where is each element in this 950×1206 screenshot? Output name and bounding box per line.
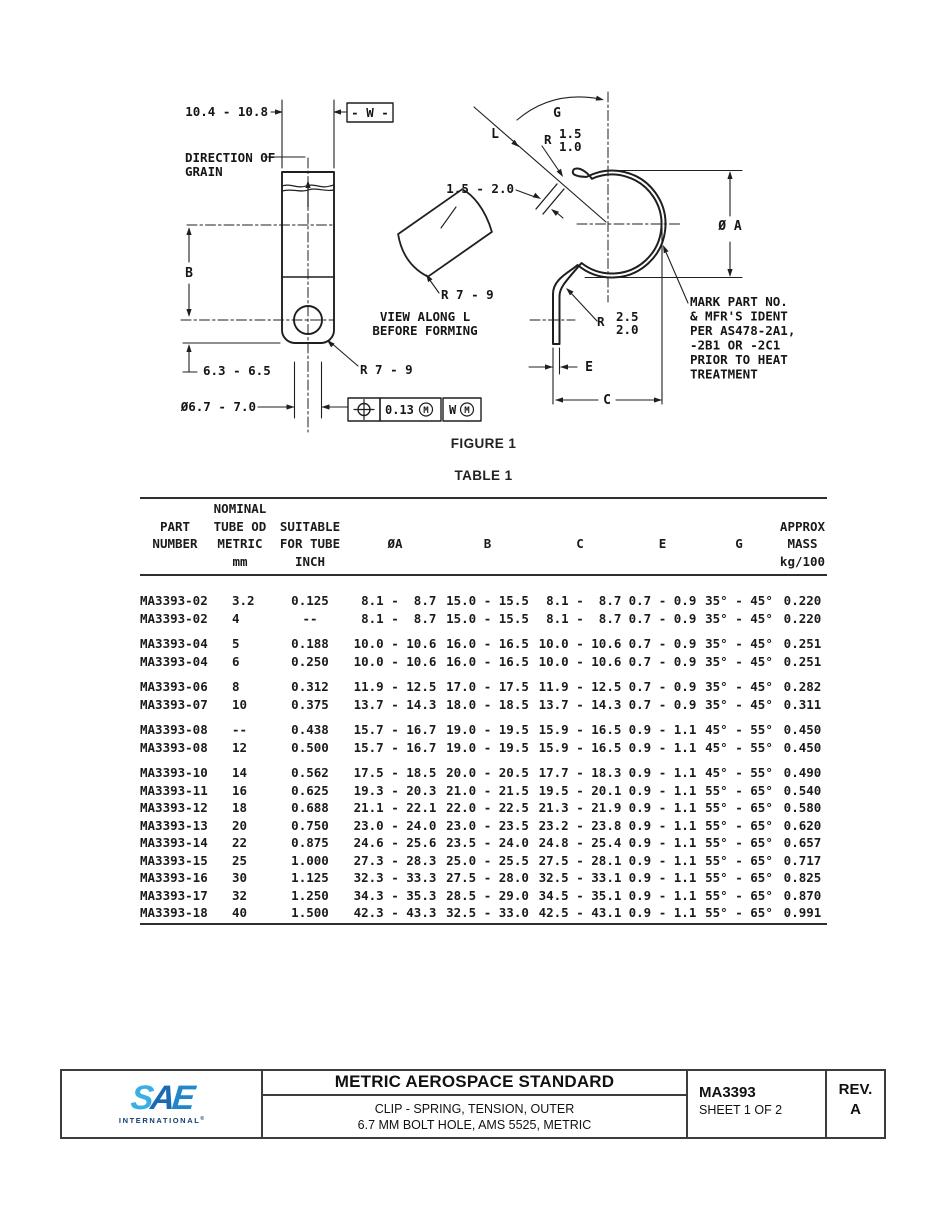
table-cell: MA3393-17: [140, 887, 210, 905]
table-cell: 10.0 - 10.6: [535, 635, 625, 653]
table-cell: 0.251: [778, 635, 827, 653]
table-header-line: [700, 519, 778, 537]
table-header-line: [350, 554, 440, 572]
table-cell: 55° - 65°: [700, 852, 778, 870]
table-cell: 35° - 45°: [700, 653, 778, 671]
table-cell: 23.0 - 23.5: [440, 817, 535, 835]
table-cell: 32.5 - 33.1: [535, 869, 625, 887]
table-header-line: [350, 519, 440, 537]
table-cell: 55° - 65°: [700, 834, 778, 852]
table-cell: 0.657: [778, 834, 827, 852]
table-cell: 6: [210, 653, 270, 671]
fcf-datum-modifier: M: [464, 406, 470, 416]
table-cell: 20: [210, 817, 270, 835]
table-header-line: mm: [210, 554, 270, 572]
table-cell: 0.9 - 1.1: [625, 721, 700, 739]
table-header-cell-tube-od-metric: NOMINALTUBE ODMETRICmm: [210, 501, 270, 571]
table-header-line: [778, 501, 827, 519]
table-row: MA3393-15251.00027.3 - 28.325.0 - 25.527…: [140, 852, 827, 870]
table-cell: 4: [210, 610, 270, 628]
table-cell: MA3393-08: [140, 721, 210, 739]
table-header-line: kg/100: [778, 554, 827, 572]
table-cell: 13.7 - 14.3: [535, 696, 625, 714]
dia-a-label: Ø A: [717, 219, 742, 234]
table-header-line: PART: [140, 519, 210, 537]
table-header-cell-part-number: PARTNUMBER: [140, 501, 210, 571]
table-cell: MA3393-10: [140, 764, 210, 782]
table-row: MA3393-18401.50042.3 - 43.332.5 - 33.042…: [140, 904, 827, 922]
table-cell: 0.7 - 0.9: [625, 592, 700, 610]
table-cell: 0.311: [778, 696, 827, 714]
table-row: MA3393-023.20.125 8.1 - 8.715.0 - 15.5 8…: [140, 592, 827, 610]
table-cell: 11.9 - 12.5: [350, 678, 440, 696]
mark-note-line: PER AS478-2A1,: [690, 323, 795, 338]
table-cell: MA3393-15: [140, 852, 210, 870]
table-header-line: NUMBER: [140, 536, 210, 554]
table-cell: MA3393-04: [140, 653, 210, 671]
table-cell: 15.0 - 15.5: [440, 610, 535, 628]
table-header-line: [270, 501, 350, 519]
datum-w-label: - W -: [351, 105, 389, 120]
table-header-line: B: [440, 536, 535, 554]
table-cell: 15.7 - 16.7: [350, 721, 440, 739]
title-block: SAE INTERNATIONAL® METRIC AEROSPACE STAN…: [60, 1069, 886, 1139]
sae-logo: SAE INTERNATIONAL®: [62, 1071, 261, 1137]
table-cell: 55° - 65°: [700, 904, 778, 922]
table-cell: 45° - 55°: [700, 764, 778, 782]
table-cell: 8.1 - 8.7: [350, 610, 440, 628]
table-cell: 0.717: [778, 852, 827, 870]
table-cell: 0.625: [270, 782, 350, 800]
fcf-tolerance: 0.13: [385, 403, 414, 417]
fcf-modifier: M: [423, 406, 429, 416]
table-row: MA3393-10140.56217.5 - 18.520.0 - 20.517…: [140, 764, 827, 782]
table-cell: 0.9 - 1.1: [625, 739, 700, 757]
table-cell: 0.620: [778, 817, 827, 835]
table-cell: 1.000: [270, 852, 350, 870]
table-cell: 32: [210, 887, 270, 905]
table-cell: 8: [210, 678, 270, 696]
table-cell: 0.250: [270, 653, 350, 671]
table-header-row: PARTNUMBERNOMINALTUBE ODMETRICmmSUITABLE…: [140, 501, 827, 571]
e-dim-label: E: [585, 360, 593, 375]
table-cell: 30: [210, 869, 270, 887]
corner-radius-label: R 7 - 9: [360, 362, 413, 377]
table-header-line: SUITABLE: [270, 519, 350, 537]
table-cell: 35° - 45°: [700, 635, 778, 653]
table-header-line: [440, 519, 535, 537]
table-row: MA3393-0460.25010.0 - 10.616.0 - 16.510.…: [140, 653, 827, 671]
table-cell: 20.0 - 20.5: [440, 764, 535, 782]
table-cell: 8.1 - 8.7: [535, 610, 625, 628]
table-cell: 0.490: [778, 764, 827, 782]
table-cell: 0.562: [270, 764, 350, 782]
document-number-cell: MA3393 SHEET 1 OF 2: [688, 1071, 827, 1137]
table-cell: 19.0 - 19.5: [440, 721, 535, 739]
table-header-line: E: [625, 536, 700, 554]
table-cell: 34.5 - 35.1: [535, 887, 625, 905]
table-header-cell-b: B: [440, 501, 535, 571]
table-header-line: INCH: [270, 554, 350, 572]
clip-outline: [553, 169, 666, 344]
table-cell: 0.312: [270, 678, 350, 696]
g-angle-label: G: [553, 106, 561, 121]
mark-note-line: MARK PART NO.: [690, 294, 788, 309]
table-cell: 17.5 - 18.5: [350, 764, 440, 782]
mark-note-line: -2B1 OR -2C1: [690, 338, 780, 353]
table-header-line: [700, 501, 778, 519]
b-dim-label: B: [185, 266, 193, 281]
table-cell: 15.7 - 16.7: [350, 739, 440, 757]
table-cell: 0.9 - 1.1: [625, 764, 700, 782]
tube-outline: [398, 189, 492, 276]
table-header-line: [625, 501, 700, 519]
table-cell: 19.5 - 20.1: [535, 782, 625, 800]
sae-logo-subtext: INTERNATIONAL®: [119, 1116, 204, 1125]
table-cell: 0.9 - 1.1: [625, 852, 700, 870]
table-cell: 17.7 - 18.3: [535, 764, 625, 782]
figure-caption: FIGURE 1: [140, 436, 827, 451]
table-cell: 0.9 - 1.1: [625, 869, 700, 887]
table-cell: 5: [210, 635, 270, 653]
table-cell: 0.282: [778, 678, 827, 696]
table-row: MA3393-11160.62519.3 - 20.321.0 - 21.519…: [140, 782, 827, 800]
table-cell: 0.688: [270, 799, 350, 817]
table-cell: 0.500: [270, 739, 350, 757]
table-cell: 0.750: [270, 817, 350, 835]
table-cell: 18.0 - 18.5: [440, 696, 535, 714]
table-row: MA3393-16301.12532.3 - 33.327.5 - 28.032…: [140, 869, 827, 887]
table-row: MA3393-07100.37513.7 - 14.318.0 - 18.513…: [140, 696, 827, 714]
mark-note-line: TREATMENT: [690, 367, 758, 382]
table-cell: 15.9 - 16.5: [535, 721, 625, 739]
table-header-line: [535, 554, 625, 572]
table-cell: 10: [210, 696, 270, 714]
table-cell: 1.250: [270, 887, 350, 905]
table-header-cell-tube-inch: SUITABLEFOR TUBEINCH: [270, 501, 350, 571]
bottom-dim-label: 6.3 - 6.5: [203, 363, 271, 378]
table-cell: 19.0 - 19.5: [440, 739, 535, 757]
table-header-cell-g: G: [700, 501, 778, 571]
table-cell: 1.125: [270, 869, 350, 887]
table-cell: 27.3 - 28.3: [350, 852, 440, 870]
table-cell: 22: [210, 834, 270, 852]
table-cell: 19.3 - 20.3: [350, 782, 440, 800]
table-cell: 0.438: [270, 721, 350, 739]
table-cell: --: [270, 610, 350, 628]
table-cell: 0.9 - 1.1: [625, 904, 700, 922]
feature-control-frame: [348, 398, 481, 421]
table-cell: 21.1 - 22.1: [350, 799, 440, 817]
table-header-cell-mass: APPROXMASSkg/100: [778, 501, 827, 571]
table-cell: 8.1 - 8.7: [535, 592, 625, 610]
table-cell: 45° - 55°: [700, 721, 778, 739]
sheet-number: SHEET 1 OF 2: [699, 1102, 825, 1119]
table-cell: 16.0 - 16.5: [440, 653, 535, 671]
table-cell: 0.125: [270, 592, 350, 610]
table-cell: 0.9 - 1.1: [625, 817, 700, 835]
table-cell: 27.5 - 28.1: [535, 852, 625, 870]
table-cell: 0.375: [270, 696, 350, 714]
table-cell: MA3393-11: [140, 782, 210, 800]
l-direction-label: L: [491, 127, 499, 142]
table-rule-top: [140, 497, 827, 499]
table-cell: 17.0 - 17.5: [440, 678, 535, 696]
revision-label: REV.: [827, 1080, 884, 1100]
table-cell: 16: [210, 782, 270, 800]
table-cell: MA3393-02: [140, 610, 210, 628]
table-cell: 35° - 45°: [700, 610, 778, 628]
table-cell: 0.450: [778, 739, 827, 757]
table-cell: 15.9 - 16.5: [535, 739, 625, 757]
tube-radius-label: R 7 - 9: [441, 287, 494, 302]
table-cell: 0.251: [778, 653, 827, 671]
table-header-line: APPROX: [778, 519, 827, 537]
table-cell: 24.6 - 25.6: [350, 834, 440, 852]
table-header-line: [440, 501, 535, 519]
table-cell: 23.0 - 24.0: [350, 817, 440, 835]
table-cell: MA3393-16: [140, 869, 210, 887]
table-header-line: MASS: [778, 536, 827, 554]
table-cell: 0.7 - 0.9: [625, 610, 700, 628]
table-header-cell-dia-a: ØA: [350, 501, 440, 571]
table-cell: 55° - 65°: [700, 887, 778, 905]
mark-note-line: PRIOR TO HEAT: [690, 352, 788, 367]
table-cell: 10.0 - 10.6: [350, 653, 440, 671]
table-cell: 55° - 65°: [700, 799, 778, 817]
table-rule-header: [140, 574, 827, 576]
table-cell: 3.2: [210, 592, 270, 610]
table-cell: 42.5 - 43.1: [535, 904, 625, 922]
table-cell: 32.3 - 33.3: [350, 869, 440, 887]
figure-1-drawing: 10.4 - 10.8 - W - DIRECTION OF GRAIN B 6…: [0, 0, 950, 460]
table-cell: 55° - 65°: [700, 869, 778, 887]
table-cell: 22.0 - 22.5: [440, 799, 535, 817]
table-cell: 12: [210, 739, 270, 757]
table-cell: 0.870: [778, 887, 827, 905]
table-cell: 0.7 - 0.9: [625, 696, 700, 714]
revision-cell: REV. A: [827, 1071, 884, 1137]
table-header-line: [140, 554, 210, 572]
table-cell: 23.2 - 23.8: [535, 817, 625, 835]
table-header-line: TUBE OD: [210, 519, 270, 537]
table-cell: MA3393-08: [140, 739, 210, 757]
title-block-center: METRIC AEROSPACE STANDARD CLIP - SPRING,…: [261, 1071, 688, 1137]
table-cell: 0.9 - 1.1: [625, 799, 700, 817]
table-cell: MA3393-14: [140, 834, 210, 852]
table-header-line: [350, 501, 440, 519]
tube-view: [398, 189, 492, 293]
table-header-line: C: [535, 536, 625, 554]
bend-radius-min: 2.0: [616, 322, 639, 337]
table-cell: 24.8 - 25.4: [535, 834, 625, 852]
table-caption: TABLE 1: [140, 468, 827, 483]
table-cell: 0.875: [270, 834, 350, 852]
table-cell: 0.9 - 1.1: [625, 834, 700, 852]
table-header-line: FOR TUBE: [270, 536, 350, 554]
table-row: MA3393-08120.50015.7 - 16.719.0 - 19.515…: [140, 739, 827, 757]
table-header-line: METRIC: [210, 536, 270, 554]
table-cell: MA3393-06: [140, 678, 210, 696]
grain-label-line2: GRAIN: [185, 164, 223, 179]
table-cell: 55° - 65°: [700, 817, 778, 835]
table-cell: 0.7 - 0.9: [625, 653, 700, 671]
table-cell: MA3393-12: [140, 799, 210, 817]
table-body: MA3393-023.20.125 8.1 - 8.715.0 - 15.5 8…: [140, 592, 827, 922]
table-row: MA3393-024-- 8.1 - 8.715.0 - 15.5 8.1 - …: [140, 610, 827, 628]
standard-subtitle-line1: CLIP - SPRING, TENSION, OUTER: [263, 1101, 686, 1117]
table-cell: 0.220: [778, 592, 827, 610]
table-cell: 14: [210, 764, 270, 782]
document-number: MA3393: [699, 1083, 825, 1102]
table-cell: 0.991: [778, 904, 827, 922]
table-cell: MA3393-02: [140, 592, 210, 610]
table-cell: 35° - 45°: [700, 678, 778, 696]
table-cell: 0.580: [778, 799, 827, 817]
table-cell: 0.9 - 1.1: [625, 887, 700, 905]
width-dim-label: 10.4 - 10.8: [185, 104, 268, 119]
table-cell: 25: [210, 852, 270, 870]
table-cell: 0.825: [778, 869, 827, 887]
table-cell: MA3393-18: [140, 904, 210, 922]
table-cell: 23.5 - 24.0: [440, 834, 535, 852]
bend-radius-prefix: R: [597, 314, 605, 329]
table-cell: --: [210, 721, 270, 739]
table-cell: MA3393-13: [140, 817, 210, 835]
table-cell: 21.3 - 21.9: [535, 799, 625, 817]
table-cell: 35° - 45°: [700, 696, 778, 714]
table-row: MA3393-0680.31211.9 - 12.517.0 - 17.511.…: [140, 678, 827, 696]
mark-note-line: & MFR'S IDENT: [690, 309, 788, 324]
table-cell: 0.9 - 1.1: [625, 782, 700, 800]
table-header-line: ØA: [350, 536, 440, 554]
table-cell: 32.5 - 33.0: [440, 904, 535, 922]
table-header-cell-e: E: [625, 501, 700, 571]
table-cell: 25.0 - 25.5: [440, 852, 535, 870]
table-cell: 42.3 - 43.3: [350, 904, 440, 922]
table-cell: 1.500: [270, 904, 350, 922]
table-cell: 8.1 - 8.7: [350, 592, 440, 610]
table-header-line: [625, 519, 700, 537]
sae-logo-word: SAE: [129, 1083, 193, 1113]
table-cell: 16.0 - 16.5: [440, 635, 535, 653]
table-cell: 27.5 - 28.0: [440, 869, 535, 887]
c-dim-label: C: [603, 393, 611, 408]
table-1: PARTNUMBERNOMINALTUBE ODMETRICmmSUITABLE…: [140, 501, 827, 571]
hole-dim-label: Ø6.7 - 7.0: [180, 399, 256, 414]
table-cell: 40: [210, 904, 270, 922]
fcf-datum: W: [449, 403, 457, 417]
table-cell: 0.450: [778, 721, 827, 739]
standard-sheet-page: 10.4 - 10.8 - W - DIRECTION OF GRAIN B 6…: [0, 0, 950, 1206]
table-cell: 21.0 - 21.5: [440, 782, 535, 800]
sae-logo-letter: E: [170, 1079, 194, 1117]
thickness-dim-label: 1.5 - 2.0: [446, 181, 514, 196]
table-header-line: [535, 501, 625, 519]
table-cell: 0.220: [778, 610, 827, 628]
table-header-line: [140, 501, 210, 519]
table-cell: 0.540: [778, 782, 827, 800]
table-cell: 10.0 - 10.6: [350, 635, 440, 653]
table-row: MA3393-12180.68821.1 - 22.122.0 - 22.521…: [140, 799, 827, 817]
table-cell: 55° - 65°: [700, 782, 778, 800]
registered-mark: ®: [200, 1116, 204, 1122]
standard-title: METRIC AEROSPACE STANDARD: [263, 1071, 686, 1096]
table-cell: 0.188: [270, 635, 350, 653]
standard-subtitle-line2: 6.7 MM BOLT HOLE, AMS 5525, METRIC: [263, 1117, 686, 1133]
end-radius-min: 1.0: [559, 139, 582, 154]
table-row: MA3393-0450.18810.0 - 10.616.0 - 16.510.…: [140, 635, 827, 653]
grain-label-line1: DIRECTION OF: [185, 150, 275, 165]
table-cell: 35° - 45°: [700, 592, 778, 610]
table-cell: 10.0 - 10.6: [535, 653, 625, 671]
table-cell: 11.9 - 12.5: [535, 678, 625, 696]
table-cell: MA3393-04: [140, 635, 210, 653]
table-cell: 0.7 - 0.9: [625, 635, 700, 653]
tube-view-caption-line1: VIEW ALONG L: [380, 309, 471, 324]
table-cell: 0.7 - 0.9: [625, 678, 700, 696]
table-header-cell-c: C: [535, 501, 625, 571]
table-cell: 28.5 - 29.0: [440, 887, 535, 905]
table-cell: 13.7 - 14.3: [350, 696, 440, 714]
table-rule-bottom: [140, 923, 827, 925]
revision-value: A: [827, 1100, 884, 1120]
end-radius-prefix: R: [544, 132, 552, 147]
table-cell: 15.0 - 15.5: [440, 592, 535, 610]
table-header-line: [535, 519, 625, 537]
table-header-line: [440, 554, 535, 572]
table-row: MA3393-08--0.43815.7 - 16.719.0 - 19.515…: [140, 721, 827, 739]
table-row: MA3393-13200.75023.0 - 24.023.0 - 23.523…: [140, 817, 827, 835]
tube-view-caption-line2: BEFORE FORMING: [372, 323, 477, 338]
table-row: MA3393-14220.87524.6 - 25.623.5 - 24.024…: [140, 834, 827, 852]
table-cell: MA3393-07: [140, 696, 210, 714]
table-header-line: [625, 554, 700, 572]
table-cell: 18: [210, 799, 270, 817]
table-header-line: G: [700, 536, 778, 554]
table-header-line: [700, 554, 778, 572]
table-row: MA3393-17321.25034.3 - 35.328.5 - 29.034…: [140, 887, 827, 905]
table-cell: 45° - 55°: [700, 739, 778, 757]
table-header-line: NOMINAL: [210, 501, 270, 519]
table-cell: 34.3 - 35.3: [350, 887, 440, 905]
